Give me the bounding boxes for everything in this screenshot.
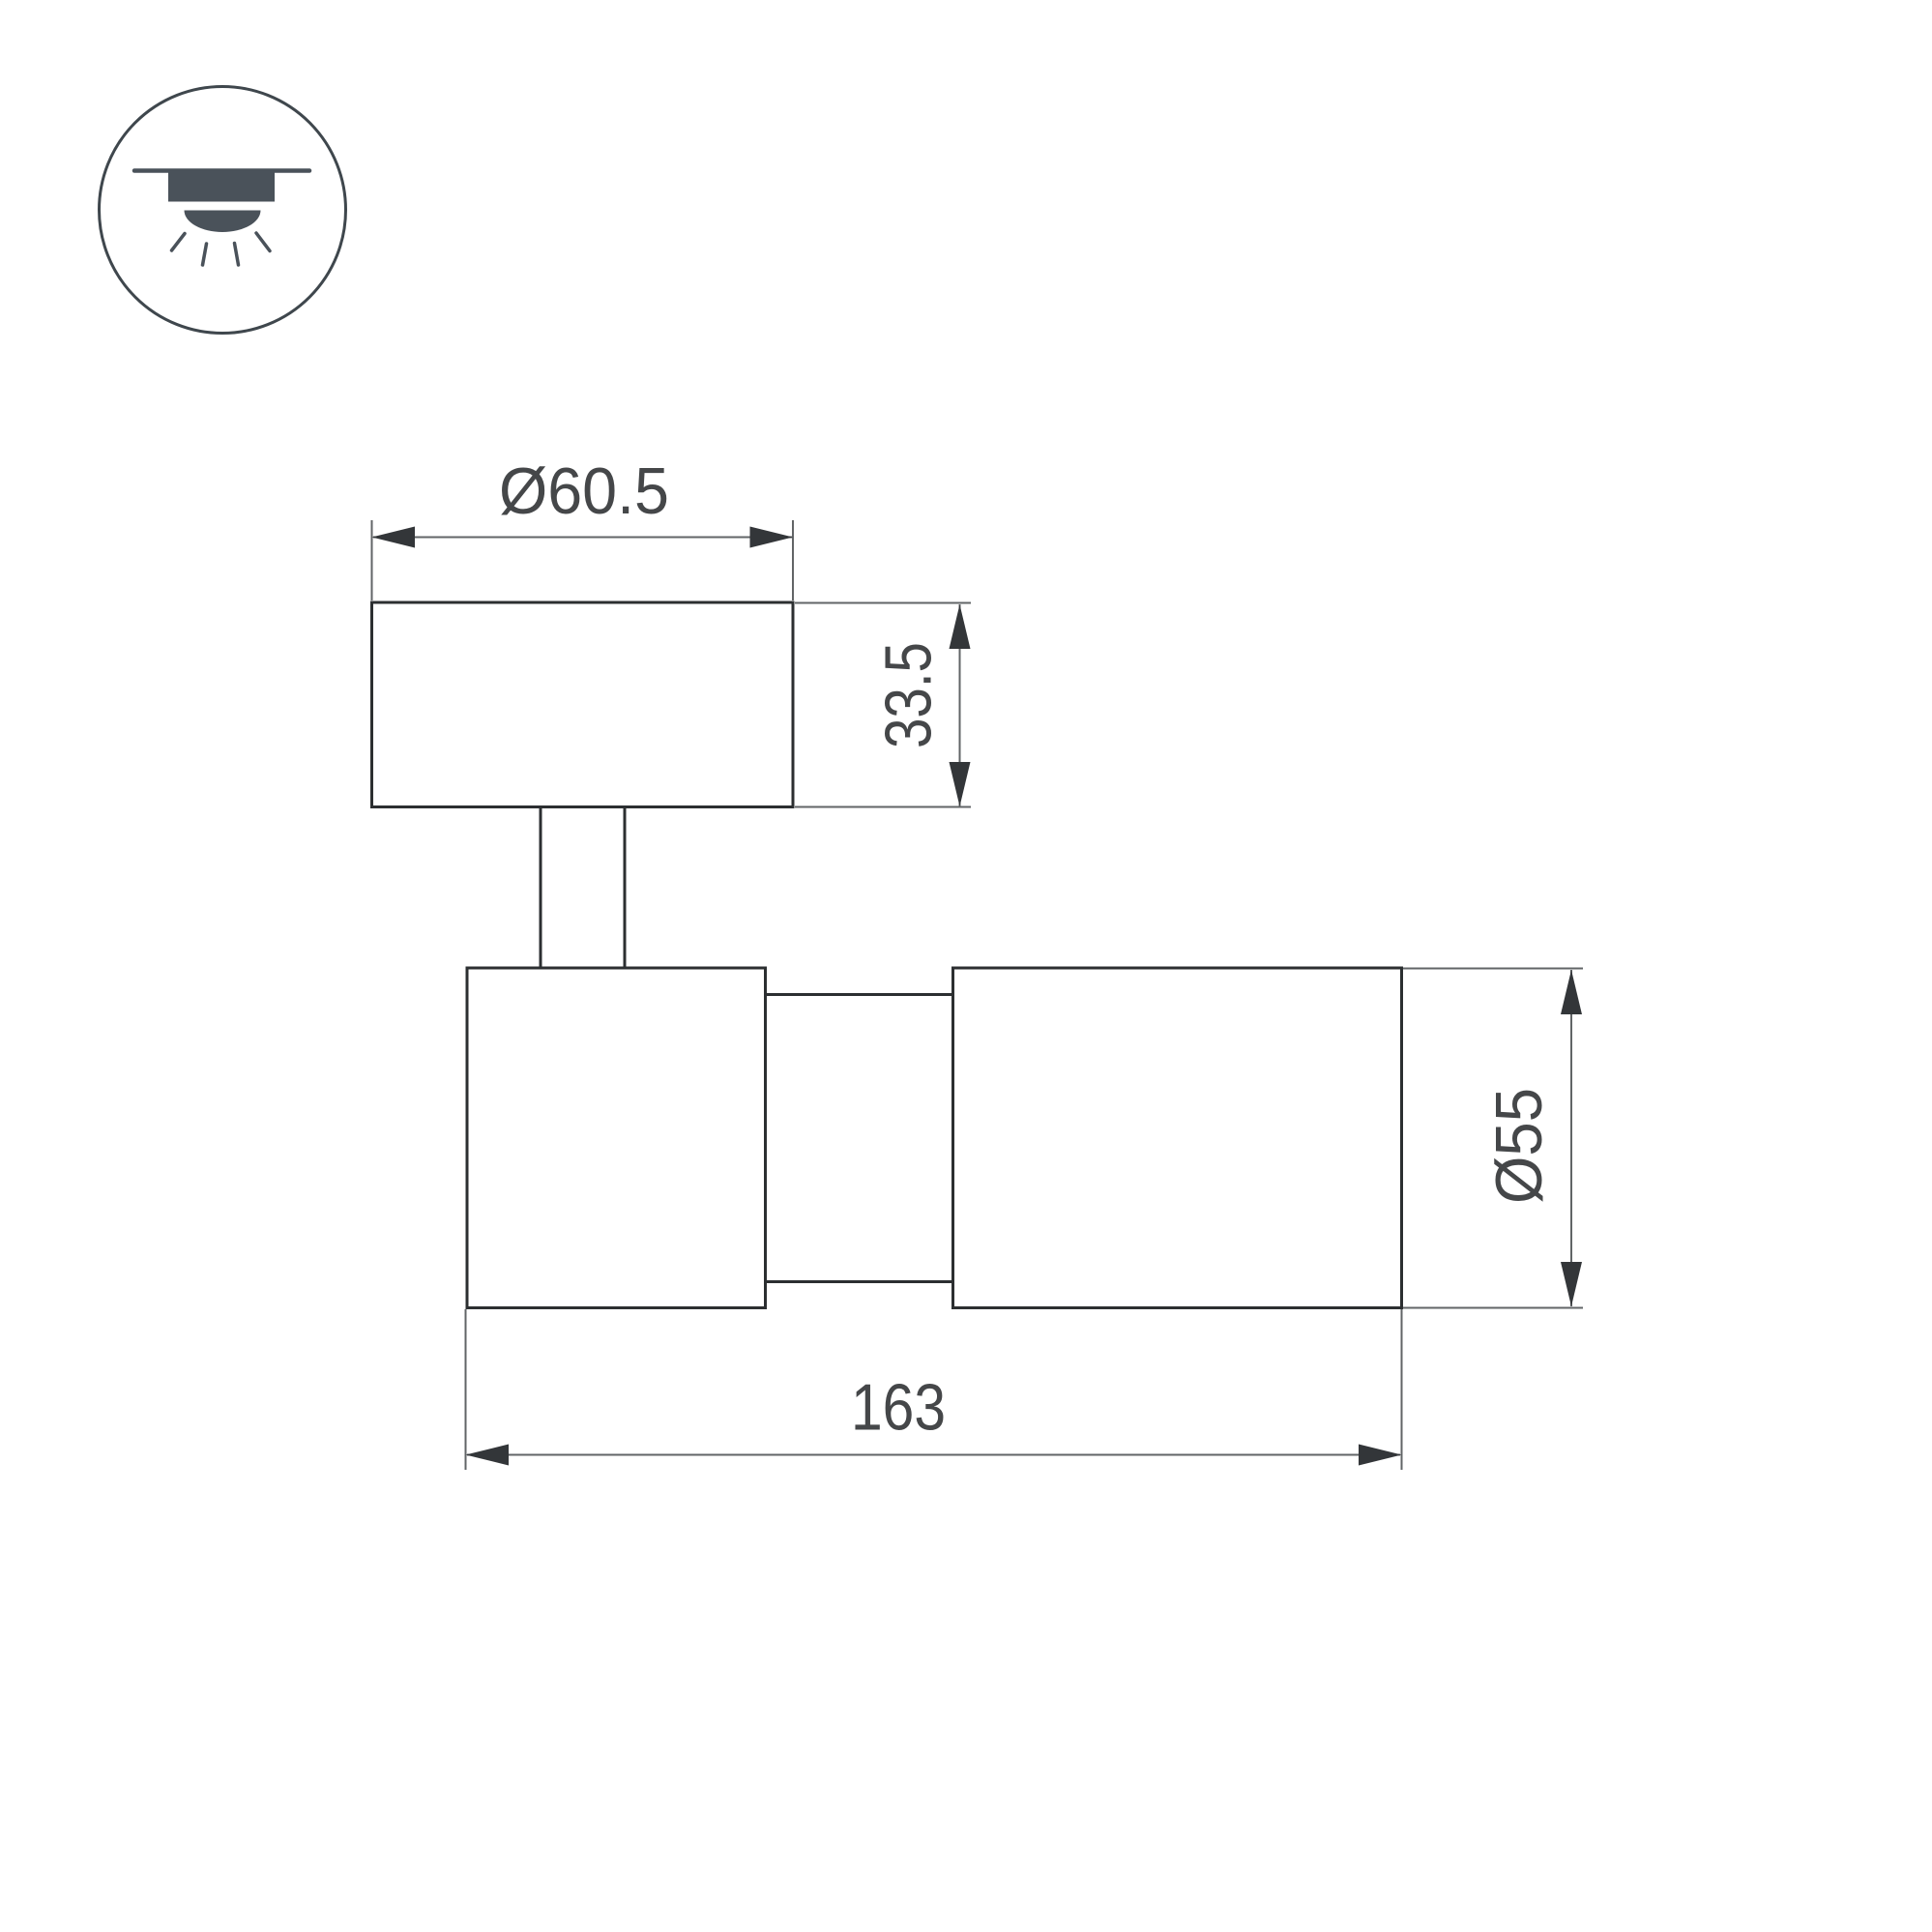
svg-text:Ø60.5: Ø60.5 <box>499 454 669 528</box>
svg-text:33.5: 33.5 <box>872 642 946 748</box>
svg-text:163: 163 <box>851 1371 946 1445</box>
svg-text:Ø55: Ø55 <box>1482 1088 1556 1204</box>
